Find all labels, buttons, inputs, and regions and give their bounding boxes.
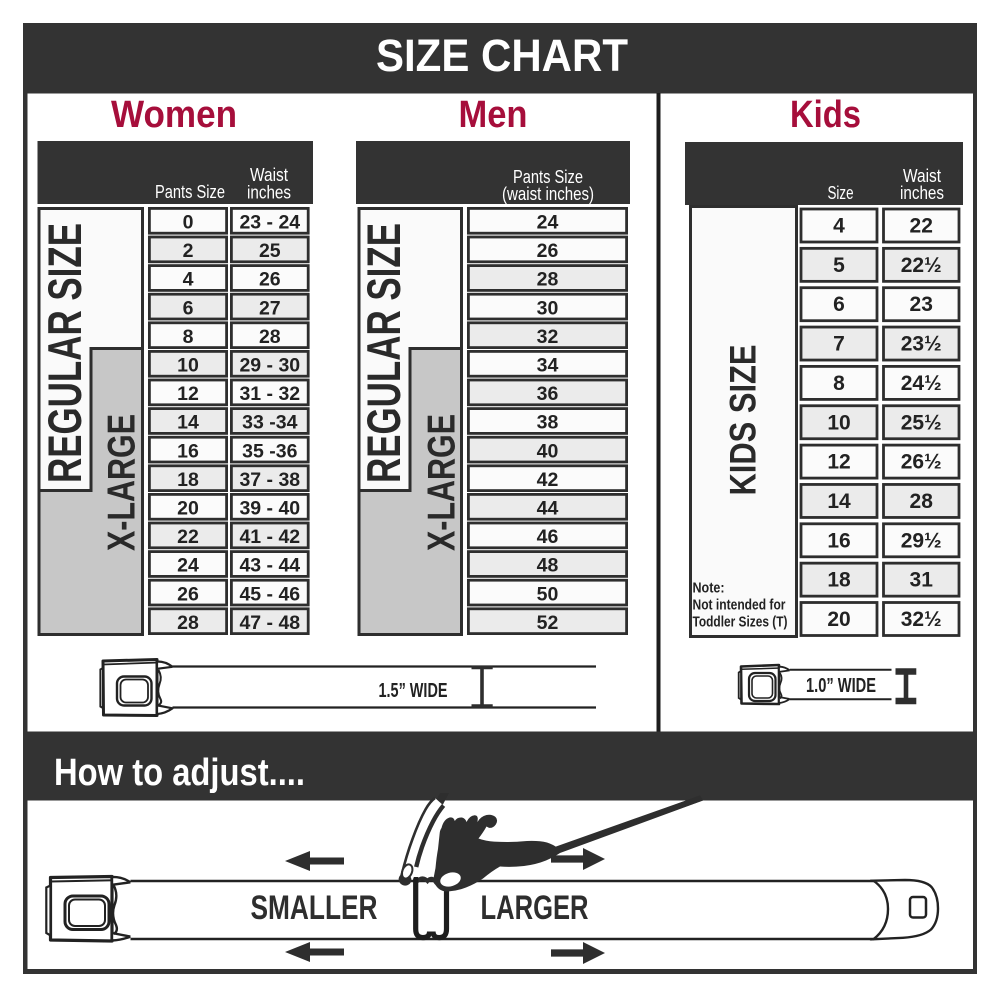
svg-text:38: 38 [537, 412, 559, 434]
svg-text:22: 22 [177, 526, 199, 548]
svg-text:29 - 30: 29 - 30 [239, 355, 300, 377]
svg-text:36: 36 [537, 383, 559, 405]
svg-text:6: 6 [833, 293, 845, 316]
svg-text:20: 20 [827, 608, 850, 631]
svg-text:How to adjust....: How to adjust.... [54, 752, 305, 794]
svg-text:Toddler Sizes (T): Toddler Sizes (T) [693, 615, 788, 631]
svg-text:24: 24 [537, 212, 559, 234]
svg-text:29½: 29½ [901, 529, 942, 552]
svg-text:Note:: Note: [693, 581, 725, 597]
svg-text:4: 4 [183, 269, 194, 291]
svg-text:8: 8 [833, 372, 845, 395]
svg-text:14: 14 [827, 490, 851, 513]
svg-text:22: 22 [910, 215, 933, 238]
svg-text:28: 28 [259, 326, 281, 348]
svg-text:22½: 22½ [901, 254, 942, 277]
svg-text:Not intended for: Not intended for [693, 598, 786, 614]
svg-text:43 - 44: 43 - 44 [239, 555, 300, 577]
svg-text:41 - 42: 41 - 42 [239, 526, 300, 548]
svg-text:39 - 40: 39 - 40 [239, 498, 300, 520]
svg-text:24½: 24½ [901, 372, 942, 395]
svg-text:Kids: Kids [790, 94, 861, 136]
svg-text:18: 18 [827, 569, 851, 592]
svg-text:7: 7 [833, 333, 845, 356]
svg-text:32: 32 [537, 326, 559, 348]
svg-text:28: 28 [177, 612, 199, 634]
svg-text:35 -36: 35 -36 [242, 440, 297, 462]
svg-text:SIZE CHART: SIZE CHART [376, 30, 628, 81]
svg-text:24: 24 [177, 555, 199, 577]
svg-text:1.5” WIDE: 1.5” WIDE [379, 680, 448, 702]
svg-text:16: 16 [177, 440, 199, 462]
svg-text:Size: Size [828, 183, 854, 203]
svg-text:X-LARGE: X-LARGE [421, 414, 464, 551]
svg-text:46: 46 [537, 526, 559, 548]
svg-text:26½: 26½ [901, 451, 942, 474]
svg-text:inches: inches [247, 183, 291, 203]
svg-text:6: 6 [183, 297, 194, 319]
svg-text:SMALLER: SMALLER [251, 889, 378, 927]
svg-text:4: 4 [833, 215, 845, 238]
svg-text:23 - 24: 23 - 24 [239, 212, 300, 234]
svg-text:31: 31 [910, 569, 934, 592]
svg-text:X-LARGE: X-LARGE [101, 414, 144, 551]
svg-text:45 - 46: 45 - 46 [239, 583, 300, 605]
svg-text:34: 34 [537, 355, 559, 377]
svg-text:inches: inches [900, 183, 944, 203]
svg-text:Men: Men [459, 94, 528, 136]
svg-text:32½: 32½ [901, 608, 942, 631]
svg-text:Pants Size: Pants Size [155, 182, 225, 202]
svg-text:40: 40 [537, 440, 559, 462]
svg-text:23: 23 [910, 293, 933, 316]
svg-text:10: 10 [827, 411, 850, 434]
svg-text:28: 28 [537, 269, 559, 291]
svg-text:12: 12 [177, 383, 199, 405]
svg-text:26: 26 [259, 269, 281, 291]
svg-text:33 -34: 33 -34 [242, 412, 297, 434]
svg-text:23½: 23½ [901, 333, 942, 356]
svg-text:8: 8 [183, 326, 194, 348]
svg-text:KIDS SIZE: KIDS SIZE [722, 345, 764, 496]
svg-text:Women: Women [111, 94, 237, 136]
svg-text:0: 0 [183, 212, 194, 234]
svg-text:52: 52 [537, 612, 559, 634]
svg-text:REGULAR SIZE: REGULAR SIZE [38, 223, 91, 483]
svg-text:44: 44 [537, 498, 559, 520]
svg-text:48: 48 [537, 555, 559, 577]
svg-text:26: 26 [537, 240, 559, 262]
svg-text:26: 26 [177, 583, 199, 605]
svg-text:25½: 25½ [901, 411, 942, 434]
svg-text:20: 20 [177, 498, 199, 520]
svg-text:16: 16 [827, 529, 850, 552]
svg-text:1.0” WIDE: 1.0” WIDE [806, 675, 876, 697]
svg-text:47 - 48: 47 - 48 [239, 612, 300, 634]
svg-text:27: 27 [259, 297, 281, 319]
svg-text:28: 28 [910, 490, 934, 513]
svg-text:14: 14 [177, 412, 199, 434]
svg-text:LARGER: LARGER [481, 889, 589, 927]
svg-text:31 - 32: 31 - 32 [239, 383, 300, 405]
svg-text:18: 18 [177, 469, 199, 491]
svg-text:30: 30 [537, 297, 559, 319]
svg-text:12: 12 [827, 451, 850, 474]
svg-text:25: 25 [259, 240, 281, 262]
svg-text:37 - 38: 37 - 38 [239, 469, 300, 491]
svg-text:(waist inches): (waist inches) [502, 184, 594, 204]
svg-text:5: 5 [833, 254, 845, 277]
svg-text:REGULAR SIZE: REGULAR SIZE [357, 223, 410, 483]
svg-text:42: 42 [537, 469, 559, 491]
svg-text:50: 50 [537, 583, 559, 605]
svg-text:10: 10 [177, 355, 199, 377]
svg-text:2: 2 [183, 240, 194, 262]
